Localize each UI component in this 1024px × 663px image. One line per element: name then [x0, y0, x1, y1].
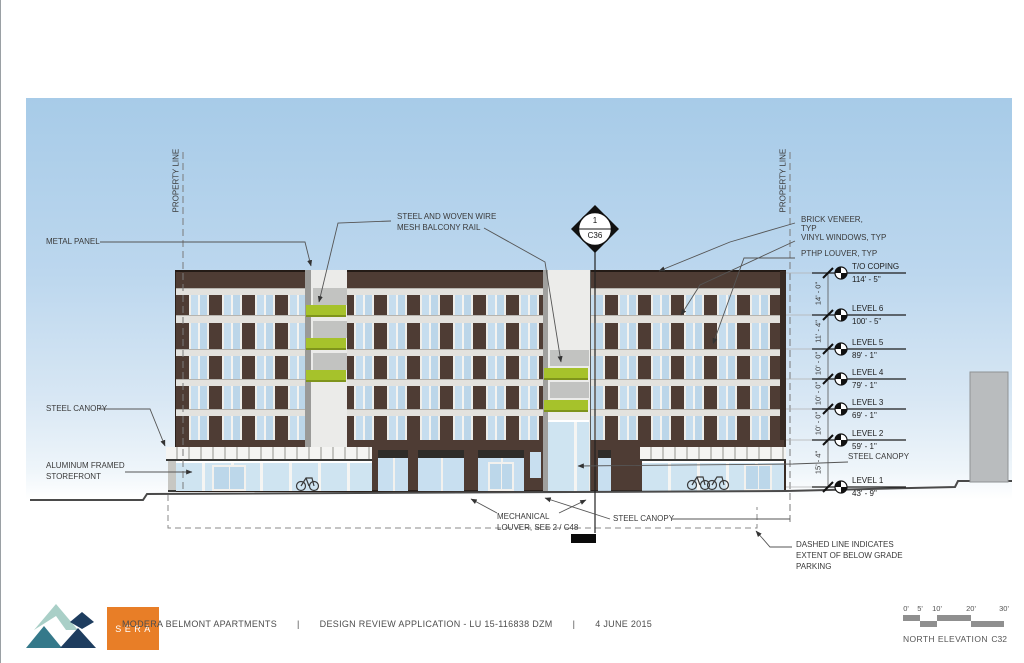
level-name: LEVEL 5	[852, 338, 883, 347]
balcony-recess	[550, 350, 589, 366]
level-elevation: 43' - 9"	[852, 489, 877, 498]
spandrel-band	[176, 315, 784, 323]
property-line-right-label: PROPERTY LINE	[779, 151, 788, 213]
annotation-mech-louver-2: LOUVER, SEE 2 / C48	[497, 523, 578, 533]
ground-french-door	[488, 462, 514, 491]
ground-window-unit	[378, 450, 408, 491]
spandrel-band	[176, 349, 784, 356]
window-row-level3	[176, 386, 784, 409]
annotation-vinyl-windows: VINYL WINDOWS, TYP	[801, 233, 886, 243]
level-elevation: 100' - 5"	[852, 317, 881, 326]
green-balcony-rail	[306, 370, 346, 382]
titlebar-separator: |	[297, 619, 300, 629]
green-balcony-rail	[544, 400, 588, 412]
center-entry-glass	[548, 420, 589, 491]
section-marker-number: 1	[581, 216, 609, 225]
annotation-dashed-note-3: PARKING	[796, 562, 831, 572]
annotation-storefront-2: STOREFRONT	[46, 472, 101, 482]
spandrel-band	[176, 409, 784, 416]
storefront-right-door	[744, 464, 772, 491]
green-balcony-rail	[544, 368, 588, 380]
level-name: LEVEL 4	[852, 368, 883, 377]
annotation-mesh-rail-1: STEEL AND WOVEN WIRE	[397, 212, 496, 222]
storefront-left	[176, 461, 372, 491]
steel-canopy-left	[166, 447, 372, 461]
balcony-recess	[313, 353, 347, 370]
spandrel-band	[176, 288, 784, 295]
titlebar: MODERA BELMONT APARTMENTS | DESIGN REVIE…	[122, 619, 652, 629]
level-elevation: 69' - 1"	[852, 411, 877, 420]
titlebar-separator: |	[573, 619, 576, 629]
annotation-metal-panel: METAL PANEL	[46, 237, 100, 247]
level-elevation: 59' - 1"	[852, 442, 877, 451]
annotation-mech-louver-1: MECHANICAL	[497, 512, 549, 522]
ground-window-unit	[418, 450, 464, 491]
section-marker-sheet: C36	[581, 231, 609, 240]
window-row-level5	[176, 323, 784, 349]
steel-canopy-right	[640, 447, 786, 461]
ground-narrow-window	[530, 452, 541, 478]
annotation-steel-canopy-left: STEEL CANOPY	[46, 404, 107, 414]
level-elevation: 89' - 1"	[852, 351, 877, 360]
annotation-mesh-rail-2: MESH BALCONY RAIL	[397, 223, 480, 233]
green-balcony-rail	[306, 338, 346, 350]
sheet-number: C32	[991, 634, 1007, 644]
drawing-sheet: PROPERTY LINE PROPERTY LINE METAL PANEL …	[0, 0, 1024, 663]
scale-tick: 10'	[932, 604, 942, 613]
drawing-date: 4 JUNE 2015	[595, 619, 652, 629]
storefront-left-door	[212, 465, 246, 491]
application-title: DESIGN REVIEW APPLICATION - LU 15-116838…	[320, 619, 553, 629]
dimension-label: 15' - 4"	[814, 441, 823, 485]
scale-tick: 5'	[917, 604, 923, 613]
level-name: LEVEL 6	[852, 304, 883, 313]
balcony-recess	[313, 321, 347, 338]
level-name: LEVEL 2	[852, 429, 883, 438]
property-line-left-label: PROPERTY LINE	[172, 151, 181, 213]
annotation-pthp-louver: PTHP LOUVER, TYP	[801, 249, 877, 259]
annotation-steel-canopy-bottom: STEEL CANOPY	[613, 514, 674, 524]
level-elevation: 114' - 5"	[852, 275, 881, 284]
window-row-level2	[176, 416, 784, 440]
level-name: LEVEL 1	[852, 476, 883, 485]
scale-segment	[937, 615, 971, 621]
graphic-scale-bar: 0' 5' 10' 20' 30' NORTH ELEVATION C32	[903, 604, 1007, 646]
scale-segment	[971, 621, 1004, 627]
balcony-recess	[313, 288, 347, 305]
sera-logo-mark	[26, 600, 106, 652]
scale-segment	[903, 615, 920, 621]
dimension-label: 10' - 0"	[814, 402, 823, 446]
level-name: T/O COPING	[852, 262, 899, 271]
level-elevation: 79' - 1"	[852, 381, 877, 390]
window-row-level4	[176, 356, 784, 379]
scale-tick: 20'	[966, 604, 976, 613]
balcony-recess	[550, 382, 589, 398]
annotation-dashed-note-2: EXTENT OF BELOW GRADE	[796, 551, 903, 561]
spandrel-band	[176, 379, 784, 386]
sheet-edge-line	[0, 0, 1, 663]
annotation-steel-canopy-right: STEEL CANOPY	[848, 452, 909, 462]
window-row-level6	[176, 295, 784, 315]
scale-tick: 30'	[999, 604, 1009, 613]
view-name: NORTH ELEVATION	[903, 634, 988, 644]
scale-segment	[920, 621, 937, 627]
scale-tick: 0'	[903, 604, 909, 613]
ground-narrow-window	[598, 450, 611, 491]
annotation-dashed-note-1: DASHED LINE INDICATES	[796, 540, 894, 550]
annotation-storefront-1: ALUMINUM FRAMED	[46, 461, 125, 471]
project-title: MODERA BELMONT APARTMENTS	[122, 619, 277, 629]
green-balcony-rail	[306, 305, 346, 317]
level-name: LEVEL 3	[852, 398, 883, 407]
